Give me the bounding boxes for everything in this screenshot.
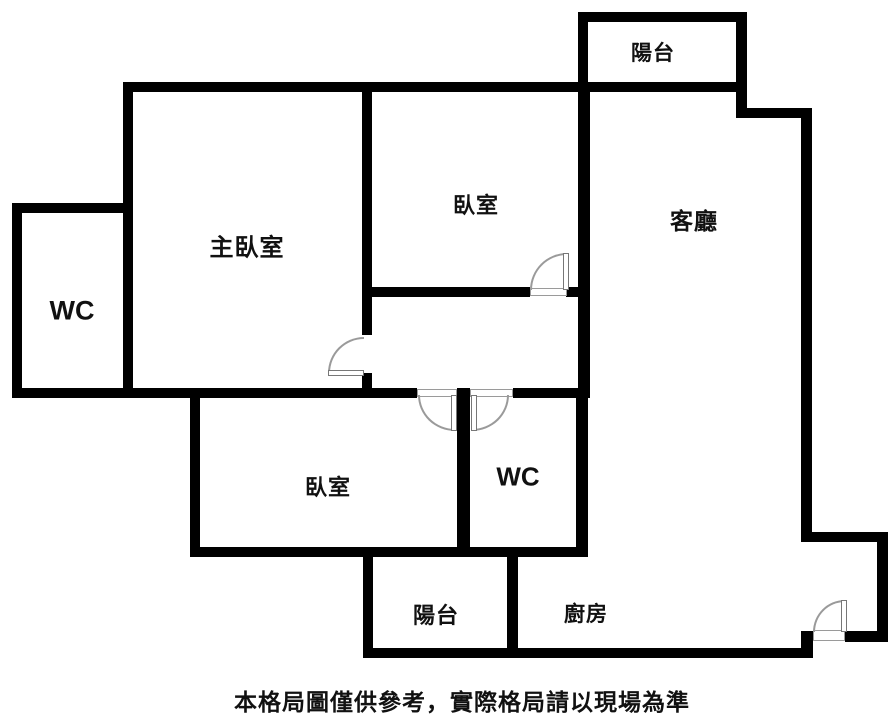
master-bedroom-divider-wall bbox=[362, 82, 372, 335]
balcony-left-wall bbox=[578, 12, 588, 92]
room-label-bedroom-top: 臥室 bbox=[453, 188, 499, 220]
kitchen-bottom-wall bbox=[363, 648, 813, 658]
balcony-bottom-left-wall bbox=[363, 547, 373, 658]
master-bedroom-door-stub bbox=[362, 373, 372, 398]
right-wall-lower bbox=[877, 532, 888, 642]
wc-left-top-wall bbox=[12, 203, 133, 213]
door-swing-arc bbox=[472, 395, 509, 431]
door-leaf bbox=[451, 395, 457, 431]
entry-step-wall bbox=[801, 532, 888, 542]
balcony-right-wall bbox=[736, 12, 747, 118]
door-leaf bbox=[471, 395, 477, 431]
balcony-kitchen-divider-wall bbox=[507, 547, 518, 658]
floor-plan: 陽台 主臥室 臥室 客廳 WC 臥室 WC 陽台 廚房 本格局圖僅供參考，實際格… bbox=[0, 0, 889, 720]
entry-bottom-wall-right bbox=[845, 631, 888, 642]
master-bedroom-left-wall bbox=[123, 82, 133, 398]
bedroom-top-bottom-wall-left bbox=[362, 287, 530, 297]
room-label-living-room: 客廳 bbox=[670, 202, 718, 236]
room-label-balcony-top: 陽台 bbox=[631, 37, 675, 67]
room-label-kitchen: 廚房 bbox=[564, 598, 608, 628]
room-label-wc-left: WC bbox=[50, 296, 95, 327]
middle-wall-left bbox=[12, 388, 417, 398]
door-leaf bbox=[841, 600, 847, 632]
door-swing-arc bbox=[530, 253, 567, 290]
door-swing-arc bbox=[418, 395, 455, 431]
wall-top bbox=[125, 82, 747, 92]
bedroom-wc-bottom-wall bbox=[190, 547, 588, 557]
door-swing-arc bbox=[328, 337, 364, 373]
room-label-master-bedroom: 主臥室 bbox=[210, 228, 285, 263]
wc-bottom-right-wall bbox=[576, 388, 588, 557]
right-wall-upper bbox=[801, 108, 812, 542]
bedroom-wc-divider-wall bbox=[457, 388, 470, 557]
door-leaf bbox=[563, 253, 569, 290]
bedroom-living-divider-wall bbox=[578, 82, 590, 398]
bedroom-bottom-left-wall bbox=[190, 390, 200, 557]
room-label-wc-bottom: WC bbox=[496, 462, 539, 493]
door-leaf bbox=[328, 370, 364, 376]
balcony-top-wall bbox=[578, 12, 747, 22]
wc-left-left-wall bbox=[12, 203, 22, 398]
disclaimer-text: 本格局圖僅供參考，實際格局請以現場為準 bbox=[234, 683, 690, 717]
room-label-balcony-bottom: 陽台 bbox=[413, 598, 459, 630]
room-label-bedroom-bottom: 臥室 bbox=[305, 470, 351, 502]
